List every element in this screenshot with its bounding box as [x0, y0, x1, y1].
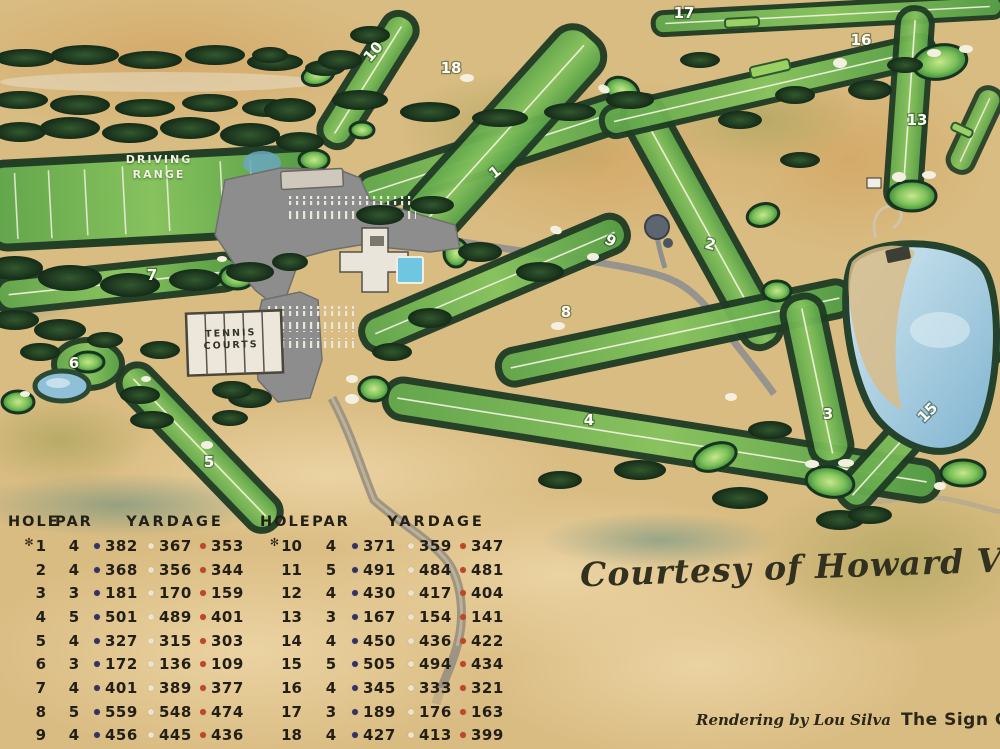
tee-marker-dot	[408, 732, 414, 738]
yardage-cell: 404	[460, 584, 516, 602]
yardage-cell: 163	[460, 703, 516, 721]
scorecard-front-nine: HOLE PAR YARDAGE ✻1438236735324368356344…	[8, 509, 256, 747]
scorecard-row: 33181170159	[8, 581, 256, 605]
scorecard-row: 124430417404	[260, 581, 520, 605]
tee-marker-dot	[94, 661, 100, 667]
hole-number-label: 5	[204, 453, 214, 471]
yardage-cell: 489	[148, 608, 200, 626]
tee-marker-dot	[460, 614, 466, 620]
hole-cell: 9	[8, 726, 54, 744]
yardage-cell: 333	[408, 679, 460, 697]
yardage-cell: 172	[94, 655, 148, 673]
yardage-cell: 159	[200, 584, 254, 602]
yardage-cell: 494	[408, 655, 460, 673]
small-pond	[35, 371, 89, 401]
tee-marker-dot	[352, 685, 358, 691]
par-cell: 4	[310, 679, 352, 697]
driving-range-label: DRIVING RANGE	[123, 152, 195, 182]
yardage-cell: 176	[408, 703, 460, 721]
scorecard-row: 74401389377	[8, 676, 256, 700]
tee-marker-dot	[352, 709, 358, 715]
tee-marker-dot	[460, 638, 466, 644]
tee-marker-dot	[408, 661, 414, 667]
tee-marker-dot	[460, 709, 466, 715]
tee-marker-dot	[200, 638, 206, 644]
scorecard-row: 24368356344	[8, 558, 256, 582]
yardage-cell: 559	[94, 703, 148, 721]
back-nine-rows: ✻104371359347115491484481124430417404133…	[260, 534, 520, 747]
tee-marker-dot	[200, 543, 206, 549]
tee-marker-dot	[148, 590, 154, 596]
par-cell: 4	[310, 632, 352, 650]
artist-credit: Rendering by Lou Silva The Sign Center	[696, 710, 1000, 730]
header-par: PAR	[54, 514, 94, 530]
tennis-courts-label: TENNIS COURTS	[191, 327, 272, 354]
tee-marker-dot	[408, 543, 414, 549]
yardage-cell: 474	[200, 703, 254, 721]
scorecard-row: 85559548474	[8, 700, 256, 724]
tee-marker-dot	[94, 590, 100, 596]
tee-marker-dot	[352, 567, 358, 573]
yardage-cell: 167	[352, 608, 408, 626]
hole-cell: 18	[260, 726, 310, 744]
par-cell: 4	[54, 679, 94, 697]
hole-cell: 15	[260, 655, 310, 673]
yardage-cell: 481	[460, 561, 516, 579]
yardage-cell: 377	[200, 679, 254, 697]
par-cell: 4	[310, 537, 352, 555]
yardage-cell: 170	[148, 584, 200, 602]
yardage-cell: 427	[352, 726, 408, 744]
yardage-cell: 501	[94, 608, 148, 626]
scorecard-row: 115491484481	[260, 558, 520, 582]
par-cell: 3	[54, 584, 94, 602]
par-cell: 3	[310, 608, 352, 626]
hole-cell: 16	[260, 679, 310, 697]
tee-marker-dot	[94, 567, 100, 573]
header-par: PAR	[310, 514, 352, 530]
tee-marker-dot	[460, 685, 466, 691]
tee-marker-dot	[352, 732, 358, 738]
tee-marker-dot	[460, 661, 466, 667]
yardage-cell: 456	[94, 726, 148, 744]
header-yardage: YARDAGE	[352, 514, 520, 530]
yardage-cell: 303	[200, 632, 254, 650]
tee-marker-dot	[460, 732, 466, 738]
studio-credit: The Sign Center	[901, 710, 1000, 730]
scorecard-row: 45501489401	[8, 605, 256, 629]
driving-range-label-line2: RANGE	[123, 167, 195, 182]
tee-marker-dot	[94, 543, 100, 549]
tee-marker-dot	[94, 614, 100, 620]
scorecard-row: 184427413399	[260, 724, 520, 748]
hole-cell: 12	[260, 584, 310, 602]
yardage-cell: 154	[408, 608, 460, 626]
shelter-building	[867, 178, 881, 188]
tee-marker-dot	[200, 567, 206, 573]
tee-marker-dot	[148, 543, 154, 549]
par-cell: 5	[54, 608, 94, 626]
tee-marker-dot	[148, 614, 154, 620]
hole-cell: 6	[8, 655, 54, 673]
tee-marker-dot	[94, 709, 100, 715]
yardage-cell: 417	[408, 584, 460, 602]
tee-marker-dot	[94, 732, 100, 738]
hole-cell: 14	[260, 632, 310, 650]
yardage-cell: 315	[148, 632, 200, 650]
hole-cell: 13	[260, 608, 310, 626]
tee-marker-dot	[408, 590, 414, 596]
hole-number-label: 13	[907, 111, 928, 129]
yardage-cell: 321	[460, 679, 516, 697]
scorecard-row: 94456445436	[8, 724, 256, 748]
tee-marker-dot	[460, 567, 466, 573]
scorecard-row: ✻104371359347	[260, 534, 520, 558]
championship-tee-star: ✻	[24, 536, 33, 549]
header-hole: HOLE	[260, 514, 310, 530]
scorecard-row: 54327315303	[8, 629, 256, 653]
yardage-cell: 436	[200, 726, 254, 744]
scorecard-row: 173189176163	[260, 700, 520, 724]
hole-number-label: 7	[147, 266, 157, 284]
tee-marker-dot	[94, 685, 100, 691]
hole-cell: ✻10	[260, 537, 310, 555]
par-cell: 3	[310, 703, 352, 721]
yardage-cell: 430	[352, 584, 408, 602]
golf-course-map-painting: 123456789101315161718 DRIVING RANGE TENN…	[0, 0, 1000, 749]
tee-marker-dot	[200, 614, 206, 620]
yardage-cell: 359	[408, 537, 460, 555]
yardage-cell: 382	[94, 537, 148, 555]
tee-marker-dot	[148, 685, 154, 691]
yardage-cell: 371	[352, 537, 408, 555]
scorecard-row: 133167154141	[260, 605, 520, 629]
yardage-cell: 189	[352, 703, 408, 721]
tee-marker-dot	[148, 661, 154, 667]
yardage-cell: 109	[200, 655, 254, 673]
yardage-cell: 353	[200, 537, 254, 555]
hole-cell: ✻1	[8, 537, 54, 555]
yardage-cell: 548	[148, 703, 200, 721]
tee-marker-dot	[352, 638, 358, 644]
scorecard-row: 155505494434	[260, 652, 520, 676]
hole-number-label: 4	[584, 411, 594, 429]
yardage-cell: 141	[460, 608, 516, 626]
yardage-cell: 399	[460, 726, 516, 744]
tee-marker-dot	[94, 638, 100, 644]
par-cell: 4	[54, 561, 94, 579]
hole-number-label: 3	[823, 405, 833, 423]
tee-marker-dot	[200, 709, 206, 715]
yardage-cell: 505	[352, 655, 408, 673]
hole-number-label: 6	[69, 354, 79, 372]
hole-number-label: 18	[441, 59, 462, 77]
yardage-cell: 345	[352, 679, 408, 697]
tee-marker-dot	[148, 709, 154, 715]
tee-marker-dot	[352, 661, 358, 667]
par-cell: 5	[310, 561, 352, 579]
yardage-cell: 401	[200, 608, 254, 626]
tee-marker-dot	[200, 732, 206, 738]
yardage-cell: 401	[94, 679, 148, 697]
yardage-cell: 445	[148, 726, 200, 744]
hole-number-label: 17	[674, 4, 695, 22]
par-cell: 4	[310, 726, 352, 744]
championship-tee-star: ✻	[270, 536, 279, 549]
clubhouse-roof-detail	[370, 236, 384, 246]
yardage-cell: 367	[148, 537, 200, 555]
tee-marker-dot	[460, 590, 466, 596]
header-yardage: YARDAGE	[94, 514, 256, 530]
hole-cell: 17	[260, 703, 310, 721]
par-cell: 4	[54, 537, 94, 555]
hole-cell: 5	[8, 632, 54, 650]
tee-marker-dot	[148, 638, 154, 644]
tee-marker-dot	[352, 543, 358, 549]
tee-marker-dot	[352, 590, 358, 596]
front-nine-rows: ✻143823673532436835634433181170159455014…	[8, 534, 256, 747]
yardage-cell: 436	[408, 632, 460, 650]
yardage-cell: 484	[408, 561, 460, 579]
tee-marker-dot	[408, 567, 414, 573]
tee-marker-dot	[200, 590, 206, 596]
yardage-cell: 389	[148, 679, 200, 697]
yardage-cell: 422	[460, 632, 516, 650]
header-hole: HOLE	[8, 514, 54, 530]
yardage-cell: 136	[148, 655, 200, 673]
hole-number-label: 8	[561, 303, 571, 321]
tee-marker-dot	[200, 661, 206, 667]
hole-cell: 8	[8, 703, 54, 721]
yardage-cell: 491	[352, 561, 408, 579]
par-cell: 5	[54, 703, 94, 721]
par-cell: 4	[310, 584, 352, 602]
par-cell: 4	[54, 632, 94, 650]
yardage-cell: 434	[460, 655, 516, 673]
yardage-cell: 327	[94, 632, 148, 650]
tee-marker-dot	[200, 685, 206, 691]
tee-marker-dot	[408, 709, 414, 715]
scorecard-row: 63172136109	[8, 652, 256, 676]
hole-cell: 3	[8, 584, 54, 602]
hole-number-label: 16	[851, 31, 872, 49]
tee-marker-dot	[408, 685, 414, 691]
cart-barn-building	[281, 168, 344, 189]
par-cell: 4	[54, 726, 94, 744]
scorecard-back-nine: HOLE PAR YARDAGE ✻1043713593471154914844…	[260, 509, 520, 747]
tee-marker-dot	[460, 543, 466, 549]
par-cell: 5	[310, 655, 352, 673]
tee-marker-dot	[352, 614, 358, 620]
hole-cell: 11	[260, 561, 310, 579]
yardage-cell: 347	[460, 537, 516, 555]
driving-range-label-line1: DRIVING	[123, 152, 195, 167]
hole-cell: 7	[8, 679, 54, 697]
scorecard-header: HOLE PAR YARDAGE	[8, 509, 256, 534]
tee-marker-dot	[408, 614, 414, 620]
swimming-pool	[397, 257, 423, 283]
scorecard-row: 144450436422	[260, 629, 520, 653]
yardage-cell: 368	[94, 561, 148, 579]
yardage-cell: 181	[94, 584, 148, 602]
yardage-cell: 344	[200, 561, 254, 579]
tee-marker-dot	[148, 732, 154, 738]
tee-marker-dot	[148, 567, 154, 573]
scorecard-row: 164345333321	[260, 676, 520, 700]
hole-cell: 2	[8, 561, 54, 579]
yardage-cell: 413	[408, 726, 460, 744]
hole-cell: 4	[8, 608, 54, 626]
par-cell: 3	[54, 655, 94, 673]
rendering-credit: Rendering by Lou Silva	[696, 711, 891, 729]
scorecard-row: ✻14382367353	[8, 534, 256, 558]
scorecard-header: HOLE PAR YARDAGE	[260, 509, 520, 534]
yardage-cell: 450	[352, 632, 408, 650]
yardage-cell: 356	[148, 561, 200, 579]
tee-marker-dot	[408, 638, 414, 644]
